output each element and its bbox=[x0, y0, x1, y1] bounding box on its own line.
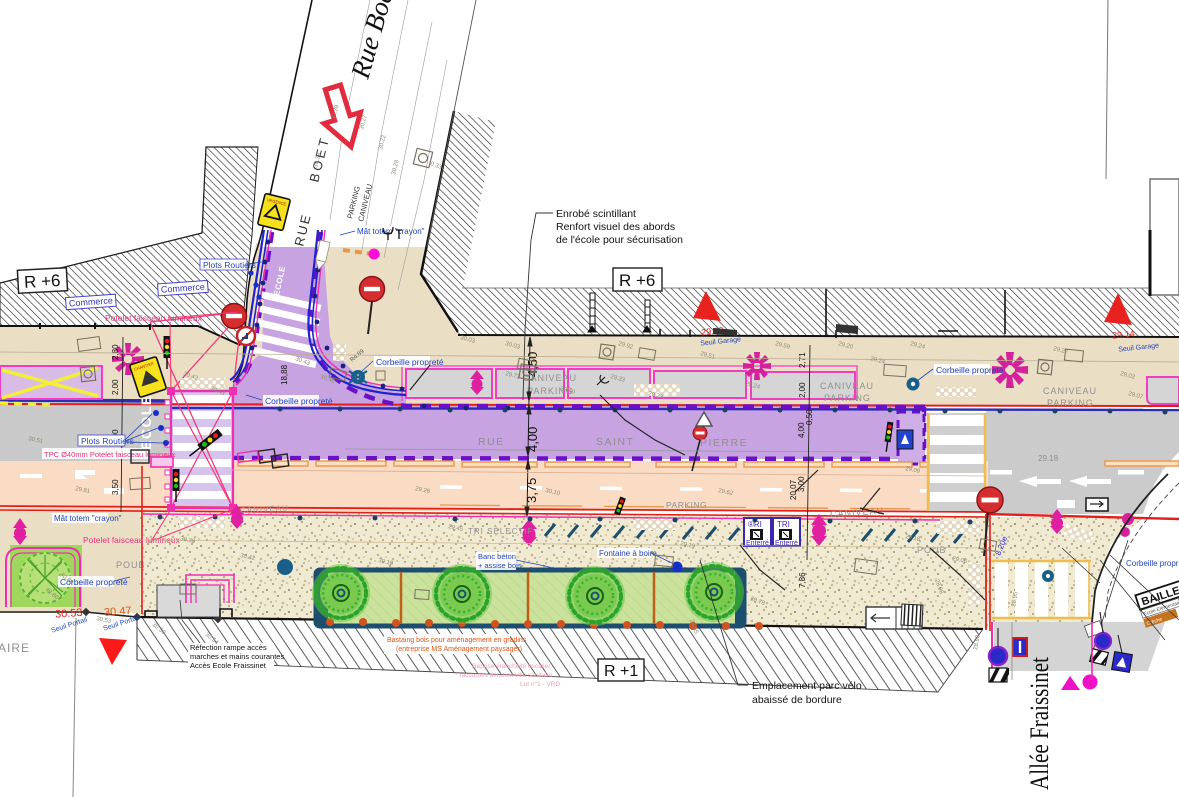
svg-text:Fontaine à boire: Fontaine à boire bbox=[599, 549, 657, 558]
svg-text:AIRE: AIRE bbox=[0, 641, 30, 655]
svg-text:R +1: R +1 bbox=[604, 663, 638, 680]
svg-text:0,50: 0,50 bbox=[805, 409, 814, 425]
svg-text:2,71: 2,71 bbox=[798, 352, 807, 368]
svg-text:ECOLE: ECOLE bbox=[138, 394, 154, 450]
svg-text:* raccordés aération ville san: * raccordés aération ville sanitaire bbox=[455, 672, 553, 679]
svg-text:Renfort visuel des abords: Renfort visuel des abords bbox=[556, 221, 675, 233]
svg-text:Mât totem "crayon": Mât totem "crayon" bbox=[357, 227, 425, 236]
svg-text:Banc béton: Banc béton bbox=[478, 552, 516, 561]
svg-text:29.18: 29.18 bbox=[1038, 454, 1059, 463]
svg-text:Mât totem "crayon": Mât totem "crayon" bbox=[54, 514, 122, 523]
svg-text:PARKING: PARKING bbox=[666, 500, 707, 510]
svg-text:+ assise bois: + assise bois bbox=[478, 561, 522, 570]
svg-text:2,00: 2,00 bbox=[798, 382, 807, 398]
svg-text:CANIVEAU: CANIVEAU bbox=[820, 381, 874, 391]
svg-text:4,00: 4,00 bbox=[525, 427, 540, 452]
svg-text:Corbeille propre: Corbeille propre bbox=[1126, 559, 1179, 568]
svg-text:7,86: 7,86 bbox=[798, 572, 807, 588]
svg-text:Bastaing bois pour aménagement: Bastaing bois pour aménagement en gradin… bbox=[387, 637, 527, 644]
svg-text:PARKING: PARKING bbox=[824, 393, 871, 403]
svg-text:PARKING: PARKING bbox=[1047, 398, 1094, 408]
svg-text:Enrobé scintillant: Enrobé scintillant bbox=[556, 208, 636, 220]
svg-text:PIERRE: PIERRE bbox=[700, 437, 748, 449]
svg-text:Lot n°1 - VRD: Lot n°1 - VRD bbox=[520, 680, 560, 688]
svg-text:30.47: 30.47 bbox=[104, 605, 132, 619]
svg-text:TRI SÉLECTIF: TRI SÉLECTIF bbox=[468, 527, 533, 536]
svg-text:R +6: R +6 bbox=[24, 271, 61, 292]
svg-text:Corbeille propreté: Corbeille propreté bbox=[376, 357, 444, 367]
svg-text:R +6: R +6 bbox=[619, 271, 655, 290]
svg-text:18,88: 18,88 bbox=[280, 364, 289, 385]
svg-text:CANIVEAU: CANIVEAU bbox=[1043, 386, 1097, 396]
svg-text:TRI: TRI bbox=[777, 520, 790, 529]
svg-text:Réfection rampe accès: Réfection rampe accès bbox=[190, 643, 267, 652]
svg-text:Reprise étanchéité escalier: Reprise étanchéité escalier bbox=[472, 663, 551, 670]
svg-text:marches et mains courantes: marches et mains courantes bbox=[190, 652, 284, 661]
svg-text:Potelet faisceau lumineux: Potelet faisceau lumineux bbox=[105, 313, 203, 323]
svg-text:abaissé de bordure: abaissé de bordure bbox=[752, 694, 842, 706]
svg-text:Corbeille propreté: Corbeille propreté bbox=[936, 365, 1004, 375]
svg-text:(entreprise MS Aménagement pay: (entreprise MS Aménagement paysager) bbox=[396, 646, 522, 653]
svg-text:SAINT: SAINT bbox=[596, 436, 634, 448]
svg-text:2,00: 2,00 bbox=[111, 379, 120, 395]
svg-text:3,50: 3,50 bbox=[111, 479, 120, 495]
svg-text:de l'école pour sécurisation: de l'école pour sécurisation bbox=[556, 234, 683, 246]
svg-text:2,80: 2,80 bbox=[111, 344, 120, 360]
svg-text:Corbeille propreté: Corbeille propreté bbox=[265, 396, 333, 406]
svg-text:Allée Fraissinet: Allée Fraissinet bbox=[1025, 656, 1054, 790]
svg-text:POUB: POUB bbox=[116, 560, 146, 570]
svg-text:Emplacement parc vélo: Emplacement parc vélo bbox=[752, 680, 862, 692]
svg-text:Accès Ecole Fraissinet: Accès Ecole Fraissinet bbox=[190, 661, 267, 670]
svg-text:RUE: RUE bbox=[478, 436, 505, 448]
svg-text:Plots Routiers: Plots Routiers bbox=[203, 260, 256, 270]
svg-text:3,75: 3,75 bbox=[524, 478, 539, 503]
